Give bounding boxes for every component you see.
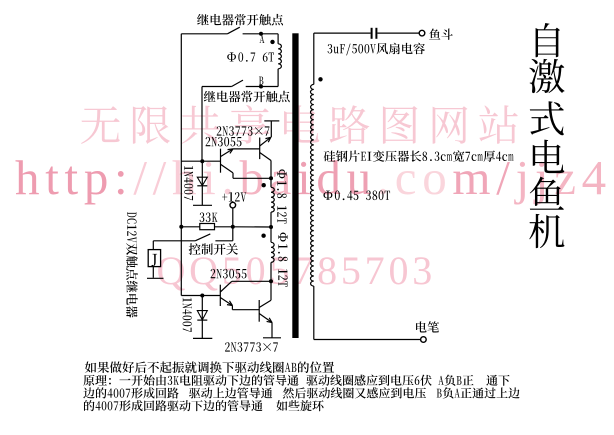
svg-text:http://hi.baidu.com/jjz4: http://hi.baidu.com/jjz4 — [15, 150, 612, 205]
